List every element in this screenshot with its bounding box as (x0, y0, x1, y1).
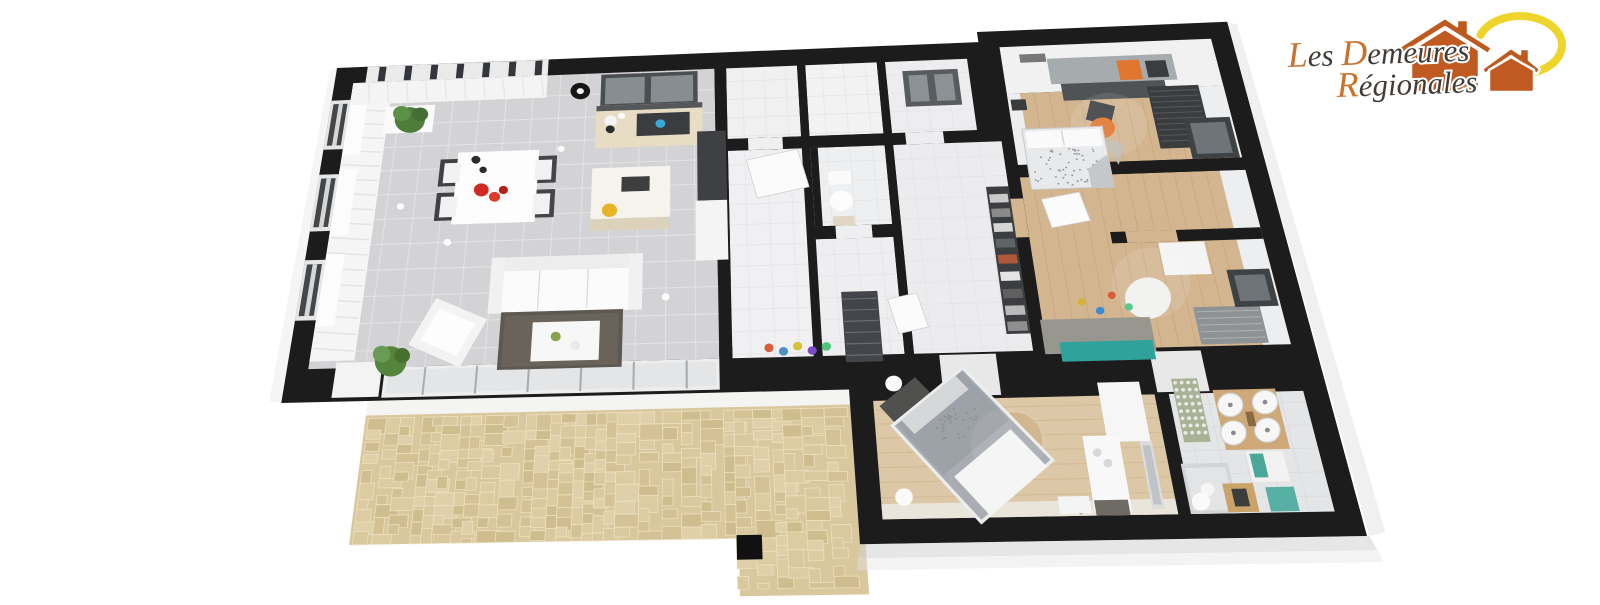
svg-text:Régionales: Régionales (1335, 60, 1478, 105)
